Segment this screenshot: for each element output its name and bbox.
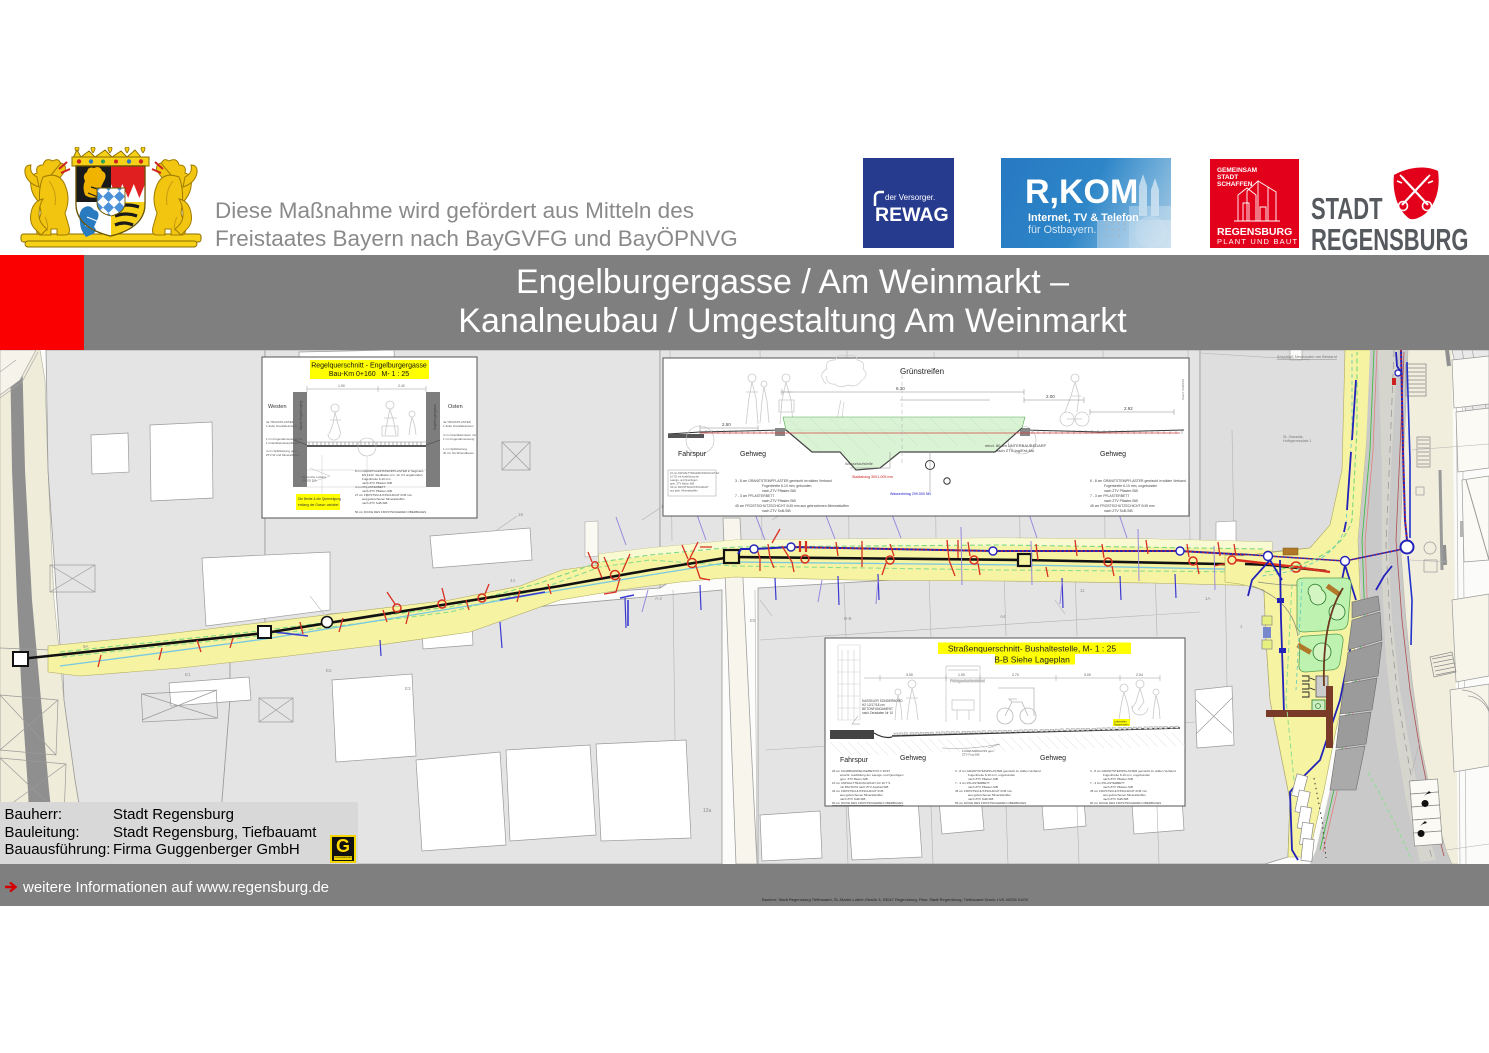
svg-text:REWAG: REWAG (875, 204, 949, 226)
svg-text:60 cm DICKE DES FROSTSICHEREN: 60 cm DICKE DES FROSTSICHEREN OBERBAUES (832, 801, 903, 805)
svg-text:nach ZTV Pflaster-StB: nach ZTV Pflaster-StB (762, 489, 796, 493)
svg-text:Westen: Westen (268, 404, 287, 410)
svg-text:2.70: 2.70 (1012, 673, 1019, 677)
svg-text:2.50: 2.50 (722, 422, 731, 427)
svg-text:12a: 12a (703, 808, 712, 814)
svg-text:Stand: 09/08/26: Stand: 09/08/26 (1181, 378, 1185, 400)
svg-text:7 - 3 cm PFLASTERBETT: 7 - 3 cm PFLASTERBETT (735, 494, 774, 498)
svg-text:entlang der Gasse: variabel: entlang der Gasse: variabel (298, 503, 339, 507)
svg-text:der Versorger.: der Versorger. (885, 193, 935, 202)
svg-text:nach ZTV Pflaster-StB: nach ZTV Pflaster-StB (1104, 499, 1138, 503)
svg-text:2.04: 2.04 (1136, 673, 1143, 677)
svg-text:2.40: 2.40 (398, 384, 405, 388)
svg-text:Gasse Engelburgerg.: Gasse Engelburgerg. (299, 400, 303, 430)
svg-text:STADT: STADT (1217, 174, 1238, 181)
svg-text:Fugenbreite 6-10 mm, gebunden: Fugenbreite 6-10 mm, gebunden (762, 484, 811, 488)
svg-text:1 cm Fugenabmessung: 1 cm Fugenabmessung (443, 437, 475, 441)
svg-text:Stadtabzug 3001-005 mw: Stadtabzug 3001-005 mw (852, 475, 893, 479)
svg-text:Fahrspur: Fahrspur (678, 451, 707, 458)
svg-text:2.00: 2.00 (1046, 394, 1055, 399)
svg-text:nach ZTV SoB-StB: nach ZTV SoB-StB (1104, 509, 1133, 513)
svg-text:Grünstreifen: Grünstreifen (900, 367, 944, 376)
svg-text:nach ZTV Pflaster-StB: nach ZTV Pflaster-StB (1104, 489, 1138, 493)
svg-text:11: 11 (1080, 588, 1085, 593)
svg-text:6.30: 6.30 (896, 386, 905, 391)
svg-text:Die Breite & die Querneigung: Die Breite & die Querneigung (298, 497, 341, 501)
svg-text:Gehweg: Gehweg (740, 451, 766, 458)
svg-text:Laengs- und Querfugen: Laengs- und Querfugen (670, 478, 698, 482)
svg-text:Regelquerschnitt - Engelburger: Regelquerschnitt - Engelburgergasse (311, 363, 427, 370)
svg-text:aus gebr. Mineralstoffen: aus gebr. Mineralstoffen (670, 489, 698, 493)
svg-text:nach ZTV-Ing/Erd-Mu: nach ZTV-Ing/Erd-Mu (996, 448, 1034, 453)
svg-text:Straßenquerschnitt- Bushaltest: Straßenquerschnitt- Bushaltestelle, M- 1… (948, 644, 1116, 654)
svg-text:GEMEINSAM: GEMEINSAM (1217, 167, 1257, 174)
svg-text:Osten: Osten (448, 404, 463, 410)
svg-text:4b cm bis Mineralbeton: 4b cm bis Mineralbeton (443, 451, 474, 455)
svg-text:für Ostbayern.: für Ostbayern. (1028, 224, 1096, 236)
svg-text:ZTV Fug-StB: ZTV Fug-StB (962, 753, 980, 757)
svg-text:1 Granitkleinsteinpflaster: 1 Granitkleinsteinpflaster (266, 441, 299, 445)
svg-text:PLANT UND BAUT: PLANT UND BAUT (1217, 237, 1298, 246)
svg-text:Gehweg: Gehweg (900, 755, 926, 762)
svg-text:16 TD mit Ausbildung der: 16 TD mit Ausbildung der (670, 475, 699, 479)
svg-text:E3: E3 (405, 686, 411, 691)
svg-text:B-B Siehe Lageplan: B-B Siehe Lageplan (994, 655, 1070, 665)
svg-text:SCHAFFEN: SCHAFFEN (1217, 181, 1253, 188)
svg-text:10 cm ASPHALTTRAGDECKSCHICHT A: 10 cm ASPHALTTRAGDECKSCHICHT AC (670, 471, 719, 475)
svg-text:Wasselaufstelle: Wasselaufstelle (845, 461, 874, 466)
svg-text:1.90: 1.90 (338, 384, 345, 388)
svg-text:Noppenstein: Noppenstein (1114, 723, 1129, 727)
svg-text:A-2: A-2 (655, 596, 663, 601)
svg-text:DN/OD 300: DN/OD 300 (302, 479, 317, 483)
svg-text:nach Zeradaten Nr 10: nach Zeradaten Nr 10 (862, 711, 893, 715)
svg-text:9A: 9A (83, 644, 89, 649)
svg-text:65 cm DICKE DES FROSTSICHEREN: 65 cm DICKE DES FROSTSICHEREN OBERBAUES (955, 801, 1026, 805)
svg-text:50 cm DICKE DES FROSTSICHEREN: 50 cm DICKE DES FROSTSICHEREN OBERBAUES (355, 510, 426, 514)
svg-text:Gehweg: Gehweg (1040, 755, 1066, 762)
svg-text:44: 44 (510, 578, 516, 583)
svg-text:B-B: B-B (844, 616, 852, 621)
svg-text:3 - 8 cm GRANITSTEINPFLASTER: 3 - 8 cm GRANITSTEINPFLASTER gemischt im… (735, 479, 832, 483)
svg-text:3.00: 3.00 (906, 673, 913, 677)
svg-text:Internet, TV & Telefon: Internet, TV & Telefon (1028, 212, 1139, 224)
svg-text:7 - 3 cm PFLASTERBETT: 7 - 3 cm PFLASTERBETT (1090, 494, 1129, 498)
svg-text:ZTV-W und Mineralbeton: ZTV-W und Mineralbeton (266, 453, 300, 457)
svg-text:1.00: 1.00 (958, 673, 965, 677)
svg-text:Anschluß Neubauten am Bestand: Anschluß Neubauten am Bestand (1277, 354, 1337, 359)
svg-text:Fahrspur: Fahrspur (840, 757, 869, 764)
svg-text:2.92: 2.92 (1124, 406, 1133, 411)
svg-text:nach ZTV Pflaster-StB: nach ZTV Pflaster-StB (762, 499, 796, 503)
svg-text:R,KOM: R,KOM (1025, 173, 1138, 211)
svg-text:A4: A4 (1000, 614, 1006, 619)
svg-text:nach ZTV SoB-StB: nach ZTV SoB-StB (362, 501, 387, 505)
svg-text:34 cm FROSTSCHUTZSCHICHT: 34 cm FROSTSCHUTZSCHICHT (670, 485, 709, 489)
svg-text:1A: 1A (1205, 596, 1211, 601)
svg-text:E1: E1 (185, 672, 191, 677)
svg-text:Engelburgergasse: Engelburgergasse (433, 404, 437, 430)
svg-text:16: 16 (518, 512, 524, 517)
svg-text:nach ZTV SoB-StB: nach ZTV SoB-StB (762, 509, 791, 513)
svg-text:E2: E2 (326, 668, 332, 673)
svg-text:Fahrgastunterstand: Fahrgastunterstand (950, 678, 985, 683)
svg-text:E5: E5 (750, 618, 756, 623)
svg-text:1 Zeile Granitkleinstein: 1 Zeile Granitkleinstein (266, 424, 297, 428)
svg-text:Bau-Km 0+160 M- 1 : 25: Bau-Km 0+160 M- 1 : 25 (329, 371, 409, 378)
svg-text:gem. ZTV Beton-StB: gem. ZTV Beton-StB (670, 482, 694, 486)
svg-text:Hofbgermeplatz 1: Hofbgermeplatz 1 (1283, 439, 1311, 443)
svg-text:Wasserbelag 299.500 NN: Wasserbelag 299.500 NN (890, 492, 931, 496)
svg-text:Gehweg: Gehweg (1100, 451, 1126, 458)
svg-text:Fugenbreite 6-10 mm, ungebunde: Fugenbreite 6-10 mm, ungebunden (1104, 484, 1157, 488)
svg-text:60 cm DICKE DES FROSTSICHEREN: 60 cm DICKE DES FROSTSICHEREN OBERBAUES (1090, 801, 1161, 805)
svg-text:3.00: 3.00 (1084, 673, 1091, 677)
svg-text:1 Zeile Granitkleinstein: 1 Zeile Granitkleinstein (443, 424, 474, 428)
svg-text:45 cm FROSTSCHUTZSCHICHT 0/4: 45 cm FROSTSCHUTZSCHICHT 0/45 mm aus geb… (735, 504, 849, 508)
svg-text:6 - 8 cm GRANITSTEINPFLASTER: 6 - 8 cm GRANITSTEINPFLASTER gemischt in… (1090, 479, 1186, 483)
svg-text:45 cm FROSTSCHUTZSCHICHT 0/4: 45 cm FROSTSCHUTZSCHICHT 0/45 mm (1090, 504, 1155, 508)
